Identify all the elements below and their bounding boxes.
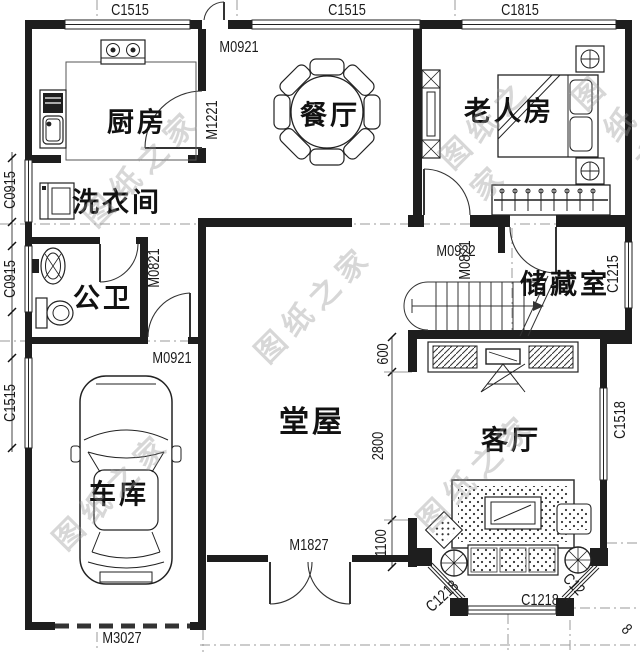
window-tag-living: C1518 <box>612 401 630 439</box>
floor-plan: 厨房 餐厅 老人房 洗衣间 公卫 储藏室 堂屋 客厅 车库 C1515 C151… <box>0 0 640 652</box>
bathroom-fixtures <box>32 248 73 328</box>
door-tag-top: M0921 <box>219 39 258 57</box>
window-tag-laundry: C0915 <box>2 171 20 209</box>
window-tag-bay-front: C1218 <box>521 592 559 610</box>
room-label-dining: 餐厅 <box>300 94 360 133</box>
dimension-600: 600 <box>375 343 393 364</box>
window-tag-storage: C1215 <box>605 255 623 293</box>
window-tag-garage: C1515 <box>2 384 20 422</box>
door-tag-hall-side: M0921 <box>152 350 191 368</box>
washing-machine <box>40 183 74 219</box>
dimension-1100: 1100 <box>373 529 391 557</box>
room-label-bathroom: 公卫 <box>73 277 133 316</box>
window-tag-top-right: C1815 <box>501 2 539 20</box>
door-tag-storage: M0821 <box>457 240 475 279</box>
room-label-hall: 堂屋 <box>279 397 345 441</box>
dimension-2800: 2800 <box>370 432 388 460</box>
room-label-storage: 储藏室 <box>520 263 610 302</box>
window-tag-top-mid: C1515 <box>328 2 366 20</box>
window-tag-top-left: C1515 <box>111 2 149 20</box>
door-tag-garage: M3027 <box>102 630 141 648</box>
window-tag-bathroom: C0915 <box>2 260 20 298</box>
door-tag-kitchen: M1221 <box>204 100 222 139</box>
door-tag-bathroom: M0821 <box>146 248 164 287</box>
door-tag-front: M1827 <box>289 537 328 555</box>
